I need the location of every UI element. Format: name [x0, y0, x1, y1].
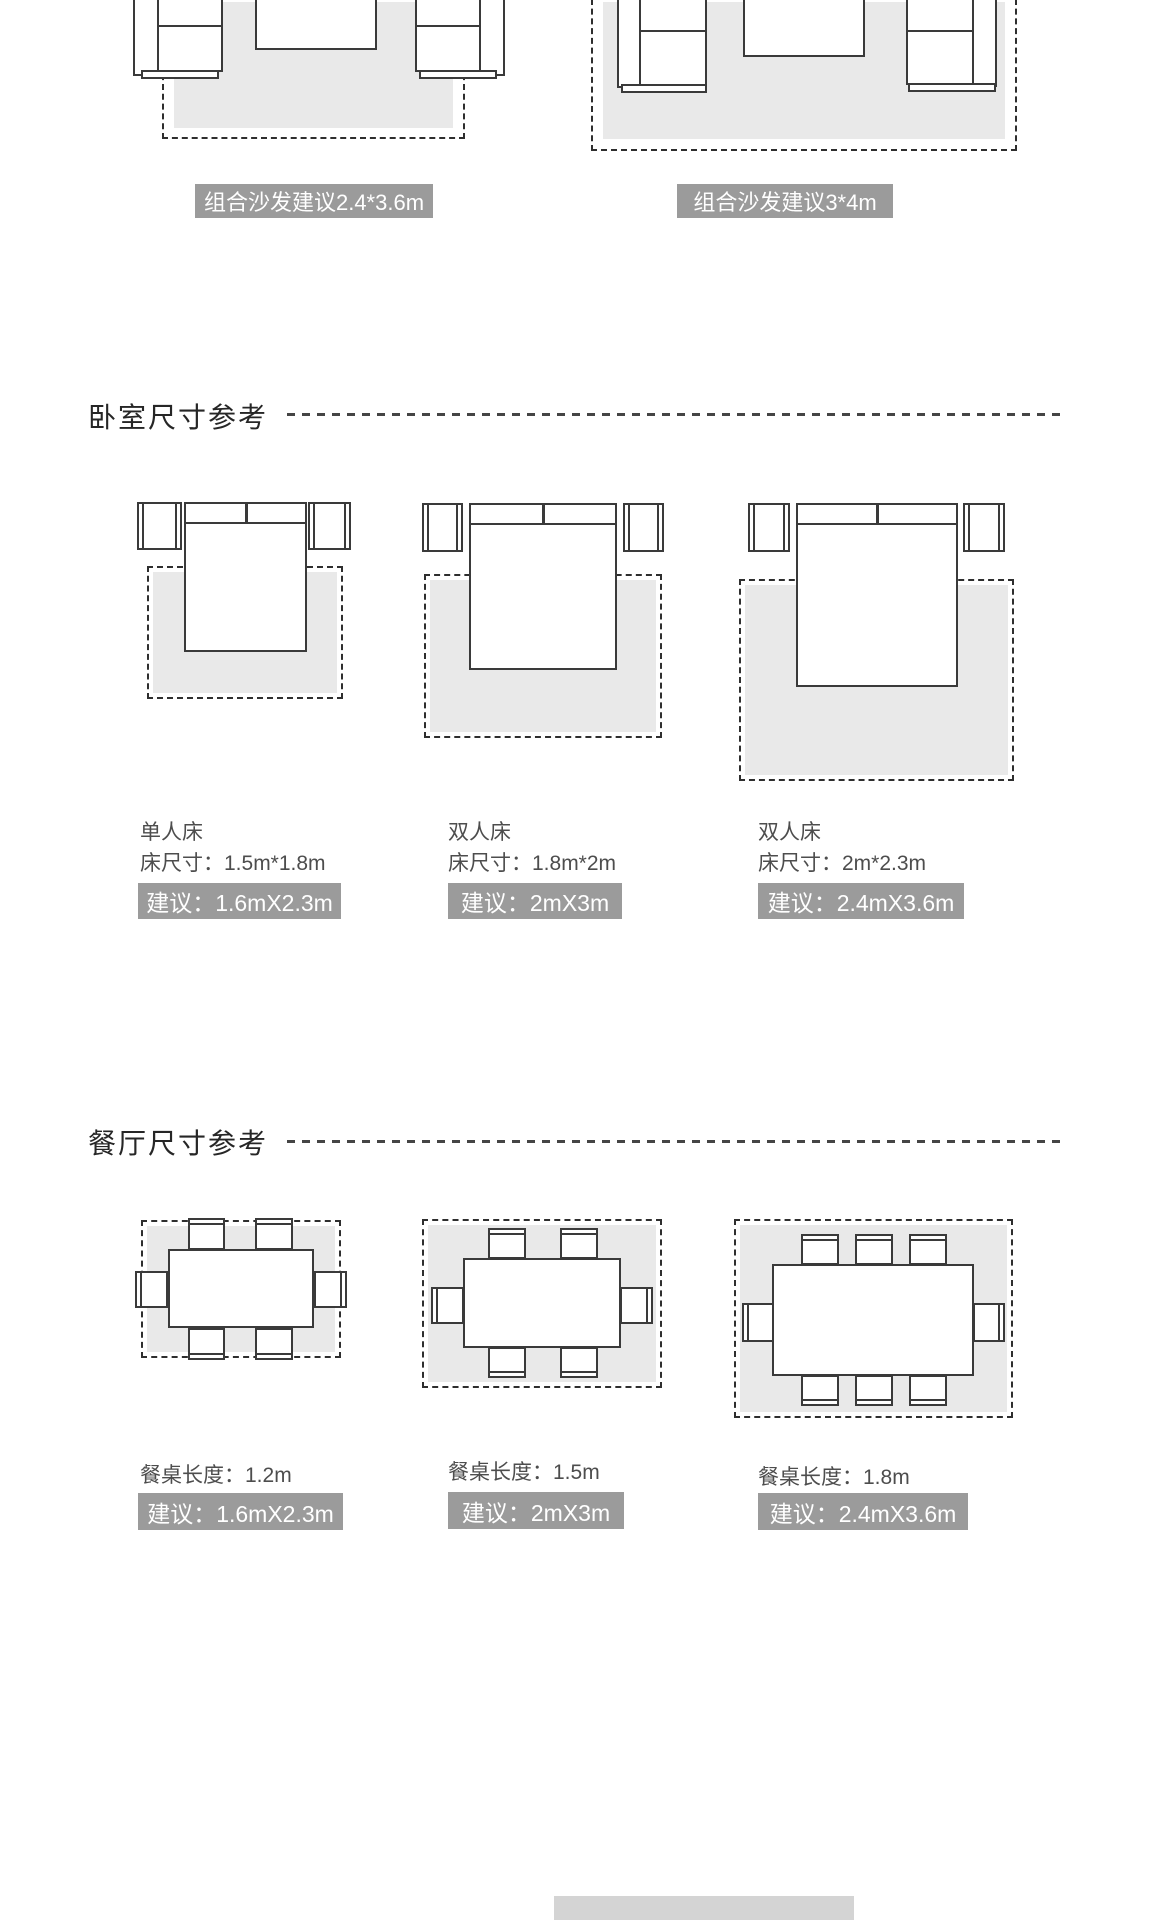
nightstand [748, 503, 790, 552]
armchair-back [479, 0, 505, 76]
armchair-seat [157, 0, 223, 72]
bed [469, 503, 617, 670]
nightstand [308, 502, 351, 550]
advice-badge: 建议：2.4mX3.6m [758, 883, 964, 919]
bed-type-label: 单人床 [140, 816, 203, 846]
chair [560, 1347, 598, 1378]
advice-badge: 建议：2mX3m [448, 1492, 624, 1529]
chair [255, 1328, 293, 1360]
sofa-skirt [621, 84, 707, 93]
sofa-advice-badge: 组合沙发建议3*4m [677, 184, 893, 218]
dining-section-title: 餐厅尺寸参考 [88, 1122, 268, 1162]
chair [909, 1234, 947, 1265]
chair [188, 1328, 225, 1360]
next-section-preview [554, 1896, 854, 1920]
nightstand [137, 502, 182, 550]
sofa-seat [639, 0, 707, 86]
chair [314, 1271, 347, 1308]
chair [431, 1287, 464, 1324]
chair [560, 1228, 598, 1259]
dining-table [463, 1258, 621, 1348]
advice-badge: 建议：1.6mX2.3m [138, 1493, 343, 1530]
chair [255, 1218, 293, 1250]
sofa-back [617, 0, 641, 88]
pillows [471, 505, 615, 525]
chair [973, 1303, 1005, 1342]
nightstand [623, 503, 664, 552]
cushion-divider [158, 25, 222, 27]
advice-badge: 建议：2mX3m [448, 883, 622, 919]
chair [488, 1347, 526, 1378]
chair [855, 1375, 893, 1406]
chair [135, 1271, 168, 1308]
bed-size-label: 床尺寸：2m*2.3m [758, 847, 926, 877]
section-dashed-rule [287, 1140, 1061, 1143]
bed-type-label: 双人床 [448, 816, 511, 846]
pillow-divider [876, 505, 879, 523]
chair [801, 1375, 839, 1406]
bed-size-label: 床尺寸：1.5m*1.8m [140, 847, 326, 877]
armchair-back [133, 0, 159, 76]
sofa-back [972, 0, 997, 87]
armchair-skirt [141, 70, 219, 79]
armchair-skirt [419, 70, 497, 79]
armchair-seat [415, 0, 481, 72]
dining-table [168, 1249, 314, 1328]
pillows [186, 504, 305, 524]
cushion-divider [907, 30, 973, 32]
advice-badge: 建议：1.6mX2.3m [138, 883, 341, 919]
nightstand [963, 503, 1005, 552]
advice-badge: 建议：2.4mX3.6m [758, 1493, 968, 1530]
table-length-label: 餐桌长度：1.2m [140, 1459, 292, 1489]
pillow-divider [245, 504, 248, 522]
cushion-divider [640, 30, 706, 32]
cushion-divider [416, 25, 480, 27]
pillow-divider [542, 505, 545, 523]
chair [488, 1228, 526, 1259]
chair [855, 1234, 893, 1265]
bed-size-label: 床尺寸：1.8m*2m [448, 847, 616, 877]
sofa-advice-badge: 组合沙发建议2.4*3.6m [195, 184, 433, 218]
size-guide-infographic: 组合沙发建议2.4*3.6m 组合沙发建议3*4m 卧室尺寸参考 单人床 床尺寸… [0, 0, 1161, 1920]
chair [909, 1375, 947, 1406]
sofa-seat [906, 0, 974, 85]
chair [188, 1218, 225, 1250]
nightstand [422, 503, 463, 552]
chair [620, 1287, 653, 1324]
dining-table [772, 1264, 974, 1376]
bed-type-label: 双人床 [758, 816, 821, 846]
pillows [798, 505, 956, 525]
coffee-table [743, 0, 865, 57]
coffee-table [255, 0, 377, 50]
bedroom-section-title: 卧室尺寸参考 [88, 396, 268, 436]
chair [801, 1234, 839, 1265]
bed [184, 502, 307, 652]
table-length-label: 餐桌长度：1.8m [758, 1461, 910, 1491]
sofa-skirt [908, 83, 996, 92]
bed [796, 503, 958, 687]
chair [742, 1303, 774, 1342]
table-length-label: 餐桌长度：1.5m [448, 1456, 600, 1486]
section-dashed-rule [287, 413, 1061, 416]
